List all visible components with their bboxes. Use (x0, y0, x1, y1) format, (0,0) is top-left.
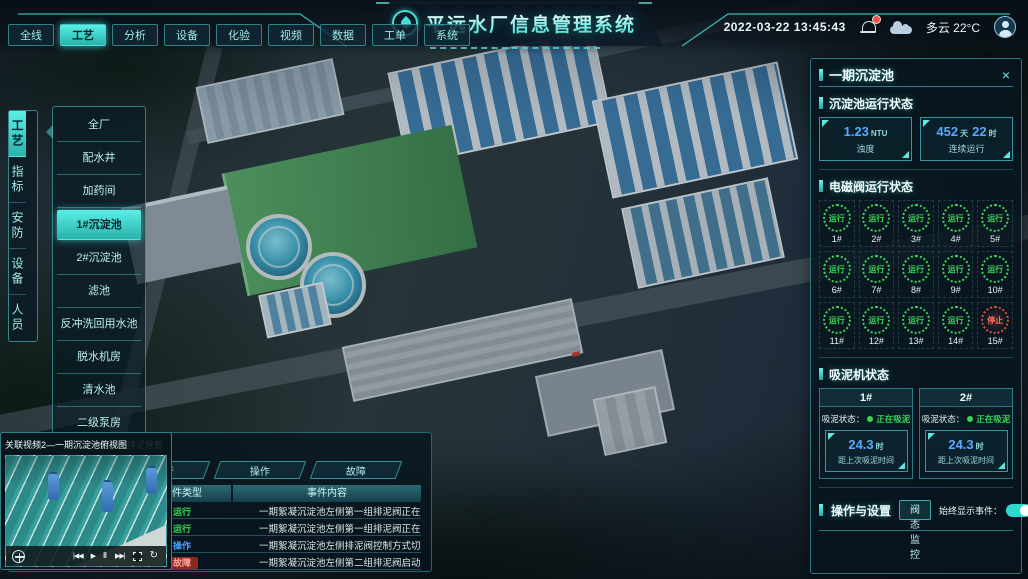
mud-time-value: 24.3 (848, 437, 873, 452)
uptime-days-value: 452 (936, 124, 958, 139)
valve-id: 9# (951, 285, 961, 295)
top-nav-tab[interactable]: 数据 (320, 24, 366, 46)
repeat-icon[interactable]: ↻ (150, 551, 158, 561)
section-title: 操作与设置 (831, 502, 891, 519)
header-right-cluster: 2022-03-22 13:45:43 多云 22°C (724, 16, 1016, 38)
ops-settings-row: 操作与设置 阀态监控 始终显示事件： (819, 498, 1013, 522)
divider (819, 487, 1013, 488)
video-control-bar: |◀◀ ▶ ‖ ▶▶| ↻ (6, 546, 166, 566)
process-menu-item[interactable]: 清水池 (57, 374, 141, 407)
valve-state-label: 运行 (948, 213, 964, 224)
video-card: 关联视频2—一期沉淀池俯视图 |◀◀ ▶ ‖ ▶▶| ↻ (0, 432, 172, 570)
process-menu-item[interactable]: 脱水机房 (57, 341, 141, 374)
pause-icon[interactable]: ‖ (103, 552, 107, 560)
valve-id: 15# (988, 336, 1003, 346)
mud-status-label: 吸泥状态： (922, 413, 965, 425)
status-stats: 1.23 NTU 浊度 452 天 22 时 连续运行 (819, 117, 1013, 161)
process-menu-item[interactable]: 全厂 (57, 109, 141, 142)
uptime-hours-value: 22 (972, 124, 986, 139)
valve-state-label: 运行 (908, 213, 924, 224)
valve-ring-icon: 运行 (981, 255, 1009, 283)
mud-status-label: 吸泥状态： (822, 413, 865, 425)
mud-time-label: 距上次吸泥时间 (838, 455, 894, 466)
sidebar-tab[interactable]: 指标 (9, 157, 26, 203)
pump-shape (48, 474, 59, 500)
mud-time-label: 距上次吸泥时间 (938, 455, 994, 466)
valve-ring-icon: 停止 (981, 306, 1009, 334)
event-content: 一期絮凝沉淀池左侧排泥阀控制方式切换为手动 (233, 538, 421, 552)
user-avatar[interactable] (994, 16, 1016, 38)
valve-ring-icon: 运行 (902, 306, 930, 334)
turbidity-value: 1.23 (844, 124, 869, 139)
sedimentation-status-panel: 一期沉淀池 × 沉淀池运行状态 1.23 NTU 浊度 452 天 22 时 (810, 58, 1022, 574)
top-nav-tab[interactable]: 设备 (164, 24, 210, 46)
top-nav-tab[interactable]: 视频 (268, 24, 314, 46)
pump-shape (146, 468, 157, 494)
valve-id: 3# (911, 234, 921, 244)
toggle-knob (1020, 505, 1028, 516)
valve-ring-icon: 运行 (902, 255, 930, 283)
top-nav-tab[interactable]: 工单 (372, 24, 418, 46)
turbidity-label: 浊度 (856, 142, 874, 155)
valve-ring-icon: 运行 (942, 255, 970, 283)
mud-status-row: 吸泥状态： 正在吸泥 (820, 413, 912, 425)
panel-title: 一期沉淀池 (829, 65, 993, 84)
uptime-label: 连续运行 (948, 142, 984, 155)
valve-status: 运行 14# (938, 302, 974, 349)
valve-ring-icon: 运行 (862, 306, 890, 334)
mud-machine-card: 2# 吸泥状态： 正在吸泥 24.3 时 距上次吸泥时间 (919, 388, 1013, 479)
process-submenu: 全厂配水井加药间1#沉淀池2#沉淀池滤池反冲洗回用水池脱水机房清水池二级泵房 (52, 106, 146, 443)
top-nav-tab[interactable]: 工艺 (60, 24, 106, 46)
valve-status: 运行 4# (938, 200, 974, 247)
top-nav-tab[interactable]: 化验 (216, 24, 262, 46)
mud-time-unit: 时 (976, 441, 984, 452)
valve-status: 运行 13# (898, 302, 934, 349)
valve-status: 运行 12# (859, 302, 895, 349)
mud-time-value: 24.3 (948, 437, 973, 452)
valve-id: 14# (948, 336, 963, 346)
valve-state-label: 运行 (908, 315, 924, 326)
weather-cloud-icon (890, 21, 912, 34)
valve-ring-icon: 运行 (823, 255, 851, 283)
show-events-toggle-group: 始终显示事件： (939, 504, 1028, 517)
skip-back-icon[interactable]: |◀◀ (73, 553, 83, 560)
video-thumbnail[interactable]: |◀◀ ▶ ‖ ▶▶| ↻ (5, 455, 167, 567)
mud-machine-card: 1# 吸泥状态： 正在吸泥 24.3 时 距上次吸泥时间 (819, 388, 913, 479)
valve-id: 12# (869, 336, 884, 346)
process-menu-item[interactable]: 1#沉淀池 (57, 210, 141, 240)
mud-machine-id: 1# (820, 389, 912, 407)
top-nav-tabs: 全线工艺分析设备化验视频数据工单系统 (8, 24, 470, 46)
mud-time-stat: 24.3 时 距上次吸泥时间 (825, 430, 908, 472)
valve-state-label: 运行 (868, 264, 884, 275)
mud-machine-cards: 1# 吸泥状态： 正在吸泥 24.3 时 距上次吸泥时间 2# (819, 388, 1013, 479)
valve-id: 5# (990, 234, 1000, 244)
status-dot-icon (867, 416, 873, 422)
event-content: 一期絮凝沉淀池左侧第二组排泥阀启动失败 (233, 555, 421, 569)
event-filter-tab[interactable]: 故障 (310, 461, 403, 479)
datetime-label: 2022-03-22 13:45:43 (724, 20, 846, 34)
valve-state-label: 运行 (829, 315, 845, 326)
valve-id: 10# (988, 285, 1003, 295)
fullscreen-icon[interactable] (133, 552, 142, 561)
valve-id: 6# (832, 285, 842, 295)
uptime-stat: 452 天 22 时 连续运行 (920, 117, 1013, 161)
valve-state-label: 运行 (987, 213, 1003, 224)
valve-status: 运行 10# (977, 251, 1013, 298)
play-icon[interactable]: ▶ (91, 553, 95, 560)
sidebar-tab[interactable]: 工艺 (9, 111, 26, 157)
event-type-badge: 运行 (173, 524, 191, 534)
skip-forward-icon[interactable]: ▶▶| (115, 553, 125, 560)
top-nav-tab[interactable]: 全线 (8, 24, 54, 46)
valve-status: 停止 15# (977, 302, 1013, 349)
divider (819, 169, 1013, 170)
valve-status: 运行 7# (859, 251, 895, 298)
valve-id: 13# (908, 336, 923, 346)
valve-state-label: 运行 (908, 264, 924, 275)
show-events-toggle[interactable] (1006, 504, 1028, 517)
valve-id: 1# (832, 234, 842, 244)
title-underline-decoration (430, 47, 600, 49)
valve-state-label: 运行 (948, 315, 964, 326)
top-header: 平远水厂信息管理系统 全线工艺分析设备化验视频数据工单系统 2022-03-22… (0, 0, 1028, 55)
valve-state-label: 运行 (829, 213, 845, 224)
video-title: 关联视频2—一期沉淀池俯视图 (5, 438, 167, 451)
mud-time-stat: 24.3 时 距上次吸泥时间 (925, 430, 1008, 472)
section-accent (819, 180, 823, 192)
playback-controls: |◀◀ ▶ ‖ ▶▶| ↻ (73, 551, 158, 561)
valve-ring-icon: 运行 (902, 204, 930, 232)
valve-status-grid: 运行 1# 运行 2# 运行 3# 运行 (819, 200, 1013, 349)
sidebar-tab[interactable]: 安防 (9, 203, 26, 249)
process-menu-item[interactable]: 反冲洗回用水池 (57, 308, 141, 341)
mud-status-value: 正在吸泥 (976, 413, 1010, 425)
panel-title-accent (819, 69, 823, 81)
valve-ring-icon: 运行 (823, 306, 851, 334)
valve-ring-icon: 运行 (942, 204, 970, 232)
valve-id: 2# (871, 234, 881, 244)
valve-status: 运行 2# (859, 200, 895, 247)
mud-machine-id: 2# (920, 389, 1012, 407)
event-content: 一期絮凝沉淀池左侧第一组排泥阀正在排泥 (233, 521, 421, 535)
dashboard-root: 平远水厂信息管理系统 全线工艺分析设备化验视频数据工单系统 2022-03-22… (0, 0, 1028, 579)
valve-status: 运行 8# (898, 251, 934, 298)
process-menu-item[interactable]: 加药间 (57, 175, 141, 208)
alarm-bell-icon[interactable] (860, 20, 876, 35)
valve-ring-icon: 运行 (981, 204, 1009, 232)
process-menu-item[interactable]: 滤池 (57, 275, 141, 308)
section-accent (819, 97, 823, 109)
process-menu-item[interactable]: 配水井 (57, 142, 141, 175)
section-title: 吸泥机状态 (829, 366, 889, 383)
valve-status: 运行 9# (938, 251, 974, 298)
alarm-badge (872, 15, 881, 24)
valve-state-label: 停止 (987, 315, 1003, 326)
valve-status: 运行 1# (819, 200, 855, 247)
valve-ring-icon: 运行 (942, 306, 970, 334)
uptime-days-unit: 天 (960, 128, 968, 139)
events-column-header: 事件内容 (233, 485, 421, 502)
valve-ring-icon: 运行 (862, 255, 890, 283)
valve-state-label: 运行 (868, 213, 884, 224)
status-section-header: 沉淀池运行状态 (819, 95, 1013, 111)
event-filter-tab[interactable]: 操作 (214, 461, 307, 479)
status-dot-icon (967, 416, 973, 422)
valve-section-header: 电磁阀运行状态 (819, 178, 1013, 194)
valve-status: 运行 5# (977, 200, 1013, 247)
ptz-dpad-icon[interactable] (12, 550, 25, 563)
event-content: 一期絮凝沉淀池左侧第一组排泥阀正在排泥 (233, 504, 421, 518)
valve-state-label: 运行 (987, 264, 1003, 275)
divider (819, 357, 1013, 358)
valve-state-label: 运行 (948, 264, 964, 275)
turbidity-stat: 1.23 NTU 浊度 (819, 117, 912, 161)
sidebar-tab[interactable]: 设备 (9, 249, 26, 295)
valve-monitor-button[interactable]: 阀态监控 (899, 500, 931, 520)
top-nav-tab[interactable]: 系统 (424, 24, 470, 46)
valve-status: 运行 11# (819, 302, 855, 349)
panel-header: 一期沉淀池 × (819, 63, 1013, 87)
mud-status-value: 正在吸泥 (876, 413, 910, 425)
pump-shape (102, 482, 113, 512)
turbidity-unit: NTU (871, 129, 887, 138)
process-menu-item[interactable]: 2#沉淀池 (57, 242, 141, 275)
valve-ring-icon: 运行 (862, 204, 890, 232)
event-filter-tab-label: 故障 (346, 463, 366, 478)
valve-status: 运行 3# (898, 200, 934, 247)
section-title: 电磁阀运行状态 (829, 178, 913, 195)
section-accent (819, 504, 823, 516)
section-accent (819, 368, 823, 380)
show-events-label: 始终显示事件： (939, 504, 1002, 517)
valve-state-label: 运行 (868, 315, 884, 326)
top-nav-tab[interactable]: 分析 (112, 24, 158, 46)
mud-section-header: 吸泥机状态 (819, 366, 1013, 382)
event-type-badge: 运行 (173, 507, 191, 517)
weather-label: 多云 22°C (926, 19, 980, 36)
sidebar-tab[interactable]: 人员 (9, 295, 26, 341)
valve-id: 7# (871, 285, 881, 295)
valve-id: 4# (951, 234, 961, 244)
uptime-hours-unit: 时 (989, 128, 997, 139)
section-title: 沉淀池运行状态 (829, 95, 913, 112)
close-icon[interactable]: × (999, 66, 1013, 84)
valve-id: 11# (830, 336, 844, 346)
valve-state-label: 运行 (829, 264, 845, 275)
mud-status-row: 吸泥状态： 正在吸泥 (920, 413, 1012, 425)
valve-status: 运行 6# (819, 251, 855, 298)
event-type-badge: 操作 (173, 541, 191, 551)
left-sidebar-tabs: 工艺指标安防设备人员 (8, 110, 38, 342)
mud-time-unit: 时 (876, 441, 884, 452)
valve-id: 8# (911, 285, 921, 295)
valve-ring-icon: 运行 (823, 204, 851, 232)
event-filter-tab-label: 操作 (250, 463, 270, 478)
